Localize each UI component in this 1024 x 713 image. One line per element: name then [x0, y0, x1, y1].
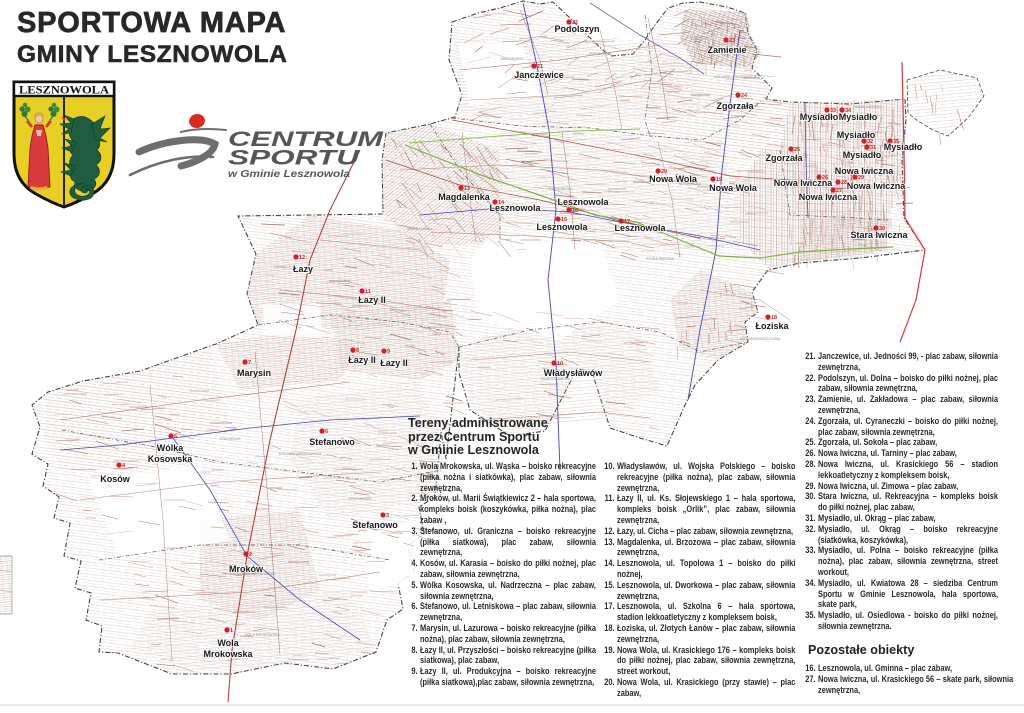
svg-text:NOWE WYPEDY: NOWE WYPEDY	[854, 105, 882, 109]
svg-text:SPORTU: SPORTU	[228, 146, 360, 170]
svg-text:LESZNOWOLA: LESZNOWOLA	[548, 187, 574, 191]
svg-text:Mysiadło: Mysiadło	[843, 150, 882, 160]
svg-text:PODOLSZYN: PODOLSZYN	[589, 52, 612, 56]
svg-text:STARA IWICZNA: STARA IWICZNA	[646, 257, 674, 261]
svg-text:Janczewice: Janczewice	[514, 70, 564, 80]
svg-text:Magdalenka: Magdalenka	[438, 192, 491, 202]
svg-text:7: 7	[248, 360, 251, 366]
svg-text:Łoziska: Łoziska	[755, 321, 789, 331]
svg-text:10: 10	[557, 361, 563, 367]
svg-text:Podolszyn: Podolszyn	[554, 24, 599, 34]
svg-text:Stefanowo: Stefanowo	[309, 437, 355, 447]
svg-text:Nowa Wola: Nowa Wola	[709, 183, 758, 193]
svg-text:Lesznowola: Lesznowola	[536, 222, 588, 232]
svg-text:12: 12	[299, 255, 305, 261]
svg-text:Łazy II: Łazy II	[358, 295, 386, 305]
svg-text:Zgorzała: Zgorzała	[716, 101, 754, 111]
svg-text:8: 8	[356, 348, 359, 354]
svg-text:Wólka: Wólka	[157, 443, 184, 453]
svg-text:Mysiadło: Mysiadło	[884, 142, 923, 152]
svg-text:9: 9	[387, 349, 390, 355]
svg-text:Lesznowola: Lesznowola	[557, 197, 609, 207]
svg-text:KOLONIA WARSZAWSKA: KOLONIA WARSZAWSKA	[279, 452, 322, 456]
svg-text:WLADYSLAWOW: WLADYSLAWOW	[540, 377, 570, 381]
svg-text:Łazy II: Łazy II	[348, 355, 376, 365]
svg-text:Stara Iwiczna: Stara Iwiczna	[850, 230, 908, 240]
svg-text:MAGDALENKA: MAGDALENKA	[408, 227, 434, 231]
svg-text:Stefanowo: Stefanowo	[352, 520, 398, 530]
svg-text:16: 16	[572, 208, 578, 214]
svg-text:Nowa Iwiczna: Nowa Iwiczna	[774, 178, 834, 188]
svg-text:LESZNOWOLA: LESZNOWOLA	[19, 83, 109, 97]
svg-text:Mysiadło: Mysiadło	[839, 112, 878, 122]
svg-text:STEFANOWO: STEFANOWO	[349, 497, 372, 501]
svg-text:JAZGARZEWSZCZYZNA: JAZGARZEWSZCZYZNA	[739, 337, 781, 341]
svg-text:WOLA MROKOWSKA: WOLA MROKOWSKA	[244, 633, 280, 637]
svg-text:Lesznowola: Lesznowola	[614, 223, 666, 233]
svg-text:Zamienie: Zamienie	[707, 45, 746, 55]
svg-text:Lesznowola: Lesznowola	[489, 203, 541, 213]
svg-text:Wola: Wola	[217, 638, 239, 648]
svg-text:KOLONIA MROKOWSKA: KOLONIA MROKOWSKA	[235, 572, 277, 576]
svg-text:Kosów: Kosów	[100, 474, 131, 484]
svg-text:w Gminie Lesznowola: w Gminie Lesznowola	[228, 168, 350, 180]
svg-text:STACHOWO: STACHOWO	[220, 437, 241, 441]
svg-text:23: 23	[729, 38, 735, 44]
svg-text:5: 5	[174, 434, 177, 440]
svg-text:Mysiadło: Mysiadło	[837, 130, 876, 140]
svg-text:KOLONIA LESZNOWOLA: KOLONIA LESZNOWOLA	[714, 75, 756, 79]
svg-text:Nowa Iwiczna: Nowa Iwiczna	[847, 181, 907, 191]
svg-text:2: 2	[249, 552, 252, 558]
svg-text:Mysiadło: Mysiadło	[800, 112, 839, 122]
svg-text:Nowa Iwiczna: Nowa Iwiczna	[799, 192, 859, 202]
svg-text:Łazy II: Łazy II	[380, 358, 408, 368]
svg-text:Kosowska: Kosowska	[148, 454, 194, 464]
svg-text:1: 1	[230, 628, 233, 634]
svg-text:Zgorzała: Zgorzała	[765, 153, 803, 163]
svg-text:24: 24	[741, 93, 748, 99]
svg-text:Marysin: Marysin	[237, 368, 271, 378]
svg-text:6: 6	[325, 429, 328, 435]
svg-text:Łazy: Łazy	[293, 264, 313, 274]
svg-text:JANCZEWICE: JANCZEWICE	[500, 57, 524, 61]
svg-text:Mrokowska: Mrokowska	[203, 649, 253, 659]
svg-text:Nowa Iwiczna: Nowa Iwiczna	[835, 166, 895, 176]
svg-text:3: 3	[386, 513, 389, 519]
svg-text:NOWA WOLA: NOWA WOLA	[679, 182, 702, 186]
